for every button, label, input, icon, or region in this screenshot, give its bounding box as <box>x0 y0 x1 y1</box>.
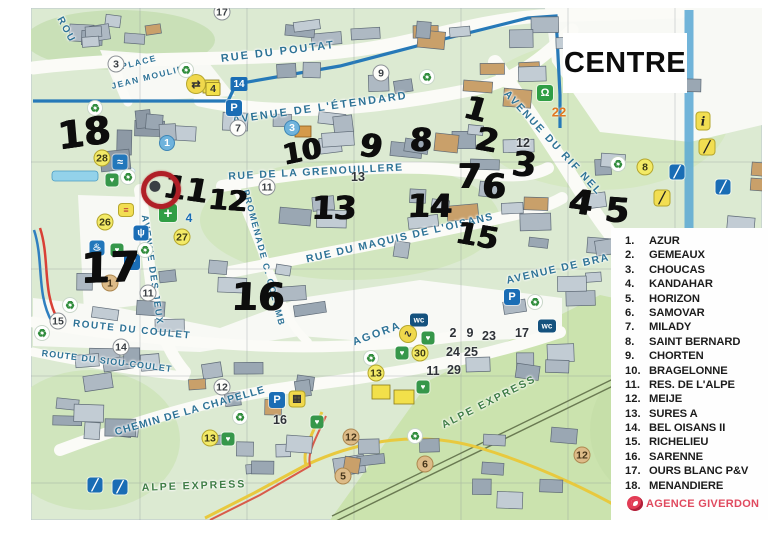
legend-item-number: 15. <box>625 435 649 449</box>
map-marker: 14 <box>231 77 248 91</box>
basket-icon: ▦ <box>290 392 305 407</box>
info-icon: i <box>697 113 710 130</box>
legend-item-number: 3. <box>625 263 649 277</box>
legend-item-number: 4. <box>625 277 649 291</box>
map-marker: 8 <box>637 159 654 176</box>
handwritten-number: 12 <box>207 186 249 217</box>
legend-item-name: MEIJE <box>649 392 682 406</box>
agence-giverdon-logo <box>627 496 643 511</box>
legend-item-name: CHOUCAS <box>649 263 705 277</box>
building <box>518 66 546 82</box>
building <box>472 479 491 495</box>
skier-icon: ╱ <box>700 140 715 155</box>
building <box>566 291 596 306</box>
legend-item-name: SURES A <box>649 407 698 421</box>
map-marker: 11 <box>140 285 157 302</box>
lift-icon: ╱ <box>716 180 731 195</box>
legend-item-number: 16. <box>625 450 649 464</box>
heart-icon: ♥ <box>396 347 409 360</box>
legend-panel: 1.AZUR2.GEMEAUX3.CHOUCAS4.KANDAHAR5.HORI… <box>611 228 768 520</box>
building <box>540 479 563 492</box>
map-marker: 27 <box>174 229 191 246</box>
building <box>585 272 601 282</box>
legend-item-number: 1. <box>625 234 649 248</box>
legend-item: 2.GEMEAUX <box>611 248 768 262</box>
legend-item-name: BRAGELONNE <box>649 364 728 378</box>
legend-item-name: SARENNE <box>649 450 703 464</box>
map-marker: 30 <box>412 345 429 362</box>
legend-item: 12.MEIJE <box>611 392 768 406</box>
building <box>351 27 380 40</box>
building <box>449 26 470 37</box>
building <box>434 133 459 153</box>
map-marker: 25 <box>464 345 478 359</box>
handwritten-number: 8 <box>409 124 433 156</box>
parking-icon: P <box>504 289 520 305</box>
map-marker: 17 <box>515 326 529 340</box>
legend-item: 11.RES. DE L'ALPE <box>611 378 768 392</box>
building <box>84 422 100 440</box>
building <box>234 362 263 374</box>
parking-icon: P <box>226 100 242 116</box>
handwritten-number: 6 <box>481 170 506 204</box>
legend-item: 9.CHORTEN <box>611 349 768 363</box>
legend-item: 7.MILADY <box>611 320 768 334</box>
legend-item-number: 11. <box>625 378 649 392</box>
heart-icon: ♥ <box>422 332 435 345</box>
parking-icon: P <box>269 392 285 408</box>
lift-icon: ╱ <box>670 165 685 180</box>
map-marker: 12 <box>214 379 231 396</box>
legend-list: 1.AZUR2.GEMEAUX3.CHOUCAS4.KANDAHAR5.HORI… <box>611 234 768 493</box>
handwritten-number: 14 <box>407 190 453 222</box>
map-marker: 23 <box>482 329 496 343</box>
handwritten-number: 15 <box>453 219 501 256</box>
building <box>236 442 253 457</box>
recycle-icon: ♻ <box>138 243 152 257</box>
building <box>685 79 701 92</box>
heart-icon: ♥ <box>222 433 235 446</box>
legend-item: 14.BEL OISANS II <box>611 421 768 435</box>
recycle-icon: ♻ <box>179 63 193 77</box>
map-marker: 13 <box>202 430 219 447</box>
venue-icon: ∿ <box>400 326 416 342</box>
scanned-resort-map: ROUPLACEJEAN MOULINRUE DU POUTATAVENUE D… <box>0 0 768 543</box>
building <box>251 461 274 474</box>
map-marker: 1 <box>159 135 175 151</box>
legend-item-name: RICHELIEU <box>649 435 708 449</box>
recycle-icon: ♻ <box>63 298 77 312</box>
building <box>82 36 100 47</box>
plug-icon: ψ <box>134 226 149 241</box>
map-marker: 24 <box>446 345 460 359</box>
recycle-icon: ♻ <box>528 295 542 309</box>
map-marker: 2 <box>450 326 457 340</box>
legend-item-number: 2. <box>625 248 649 262</box>
map-marker: 3 <box>284 120 300 136</box>
building <box>208 260 227 275</box>
legend-item: 6.SAMOVAR <box>611 306 768 320</box>
building <box>529 237 549 248</box>
medical-icon: Ω <box>537 85 553 101</box>
map-marker: 29 <box>447 363 461 377</box>
legend-item-number: 8. <box>625 335 649 349</box>
lift-icon: ╱ <box>88 478 103 493</box>
map-title: CENTRE <box>564 47 686 80</box>
building <box>188 379 206 390</box>
legend-item-name: MENANDIERE <box>649 479 723 493</box>
legend-item-name: HORIZON <box>649 292 700 306</box>
heart-icon: ♥ <box>417 381 430 394</box>
map-marker: 13 <box>368 365 385 382</box>
building <box>124 33 145 44</box>
legend-item-number: 9. <box>625 349 649 363</box>
recycle-icon: ♻ <box>121 170 135 184</box>
scan-margin-top <box>0 0 768 8</box>
map-marker: 16 <box>273 413 287 427</box>
legend-item: 10.BRAGELONNE <box>611 364 768 378</box>
map-marker: 26 <box>97 214 114 231</box>
legend-item: 13.SURES A <box>611 407 768 421</box>
map-marker: 22 <box>552 105 566 120</box>
building <box>419 438 439 452</box>
building <box>480 63 504 74</box>
legend-item-name: RES. DE L'ALPE <box>649 378 735 392</box>
legend-item-number: 6. <box>625 306 649 320</box>
legend-item-name: AZUR <box>649 234 680 248</box>
legend-item-name: SAMOVAR <box>649 306 705 320</box>
handwritten-number: 10 <box>281 134 324 170</box>
building <box>551 427 578 444</box>
building <box>545 360 569 373</box>
map-marker: 12 <box>343 429 360 446</box>
building <box>333 115 354 134</box>
scan-margin-left <box>0 0 31 543</box>
map-marker: 15 <box>50 313 67 330</box>
map-marker: 14 <box>113 339 130 356</box>
recycle-icon: ♻ <box>35 326 49 340</box>
recycle-icon: ♻ <box>408 429 422 443</box>
building <box>482 462 504 475</box>
handwritten-number: 17 <box>80 246 139 290</box>
wc-icon: wc <box>538 320 556 333</box>
map-marker: 7 <box>230 120 247 137</box>
building <box>286 435 313 453</box>
building <box>145 24 161 36</box>
building <box>201 362 222 380</box>
wc-icon: wc <box>410 314 428 327</box>
scan-margin-bottom <box>0 520 768 543</box>
legend-item-number: 5. <box>625 292 649 306</box>
building <box>483 434 505 446</box>
legend-item-name: SAINT BERNARD <box>649 335 740 349</box>
skier-icon: ╱ <box>655 191 670 206</box>
map-marker: 13 <box>351 170 365 184</box>
legend-item-name: GEMEAUX <box>649 248 705 262</box>
legend-item: 4.KANDAHAR <box>611 277 768 291</box>
legend-item-name: MILADY <box>649 320 691 334</box>
building <box>531 17 559 33</box>
building <box>524 197 548 211</box>
building <box>74 404 104 422</box>
building <box>466 357 490 372</box>
recycle-icon: ♻ <box>611 157 625 171</box>
building <box>520 213 551 231</box>
map-marker: 6 <box>417 456 434 473</box>
map-marker: 4 <box>186 211 193 225</box>
building <box>358 439 379 454</box>
legend-item-number: 14. <box>625 421 649 435</box>
map-title-box: CENTRE <box>563 33 687 93</box>
heart-icon: ♥ <box>311 416 324 429</box>
legend-item: 1.AZUR <box>611 234 768 248</box>
bus-icon: ⇄ <box>187 75 205 93</box>
handwritten-number: 3 <box>510 147 538 182</box>
legend-item-number: 10. <box>625 364 649 378</box>
recycle-icon: ♻ <box>233 410 247 424</box>
legend-item: 15.RICHELIEU <box>611 435 768 449</box>
handwritten-number: 13 <box>311 192 357 224</box>
building <box>85 26 102 38</box>
map-marker: 12 <box>574 447 591 464</box>
map-marker: 4 <box>206 82 221 96</box>
map-marker: 3 <box>108 56 125 73</box>
circled-marker-blob <box>149 180 161 192</box>
legend-item-number: 18. <box>625 479 649 493</box>
handwritten-number: 16 <box>231 278 286 316</box>
agency-name: AGENCE GIVERDON <box>646 498 759 510</box>
legend-item-number: 7. <box>625 320 649 334</box>
building <box>509 30 533 48</box>
handwritten-number: 18 <box>56 110 112 155</box>
building <box>557 276 586 292</box>
map-marker: 9 <box>373 65 390 82</box>
legend-item-number: 13. <box>625 407 649 421</box>
map-marker: 9 <box>467 326 474 340</box>
legend-item: 16.SARENNE <box>611 450 768 464</box>
legend-item: 3.CHOUCAS <box>611 263 768 277</box>
recycle-icon: ♻ <box>364 351 378 365</box>
handwritten-number: 7 <box>456 160 481 194</box>
agency-row: AGENCE GIVERDON <box>611 496 768 511</box>
map-marker: 5 <box>335 468 352 485</box>
building <box>497 491 523 509</box>
pool-icon: ≈ <box>113 155 128 170</box>
building <box>303 62 321 78</box>
recycle-icon: ♻ <box>420 70 434 84</box>
map-marker: 11 <box>426 364 439 378</box>
heart-icon: ♥ <box>106 174 119 187</box>
building <box>416 21 431 39</box>
legend-item: 17.OURS BLANC P&V <box>611 464 768 478</box>
legend-item-number: 12. <box>625 392 649 406</box>
building <box>322 131 355 147</box>
legend-item-name: OURS BLANC P&V <box>649 464 748 478</box>
building <box>159 270 177 283</box>
building <box>279 207 312 226</box>
legend-item: 18.MENANDIERE <box>611 479 768 493</box>
legend-item-name: KANDAHAR <box>649 277 713 291</box>
building <box>277 63 297 78</box>
sign-icon: ≡ <box>119 204 133 216</box>
legend-item-name: BEL OISANS II <box>649 421 725 435</box>
handwritten-number: 5 <box>603 193 631 228</box>
legend-item: 5.HORIZON <box>611 292 768 306</box>
map-marker: 11 <box>259 179 276 196</box>
legend-item-name: CHORTEN <box>649 349 704 363</box>
legend-item: 8.SAINT BERNARD <box>611 335 768 349</box>
lift-icon: ╱ <box>113 480 128 495</box>
legend-item-number: 17. <box>625 464 649 478</box>
